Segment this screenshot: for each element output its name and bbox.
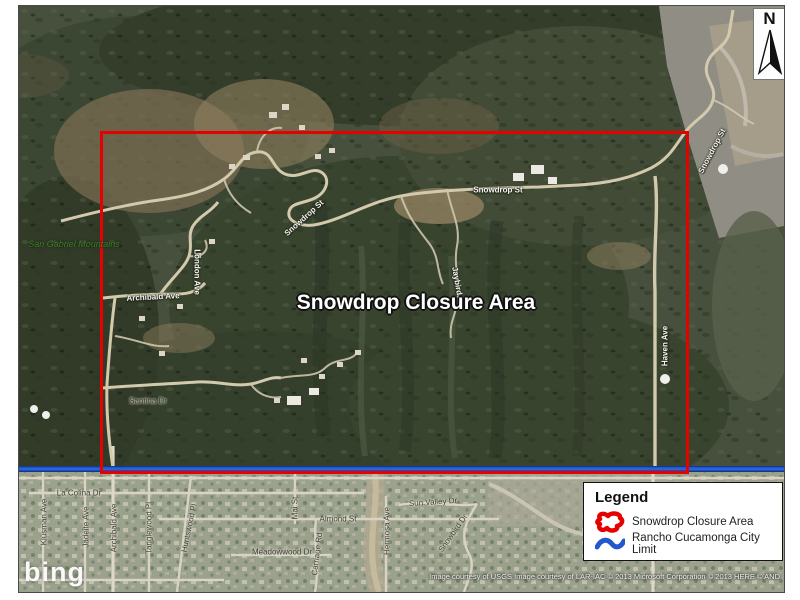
road-label-archibald-ave-lower: Archibald Ave xyxy=(110,504,119,553)
road-label-snowdrop-st: Snowdrop St xyxy=(473,186,522,195)
road-label-hermosa-ave: Hermosa Ave xyxy=(383,507,392,555)
north-arrow-icon xyxy=(757,29,783,77)
road-label-la-colina-dr: La Colina Dr xyxy=(57,489,101,498)
legend-item-label: Snowdrop Closure Area xyxy=(632,516,753,528)
north-arrow: N xyxy=(753,8,785,80)
road-label-klusman-ave: Klusman Ave xyxy=(40,499,49,546)
attribution-text: Image courtesy of USGS Image courtesy of… xyxy=(360,572,780,581)
road-label-tanglewood-pl: Tanglewood Pl xyxy=(145,502,154,554)
road-label-jadeite-ave: Jadeite Ave xyxy=(82,506,91,547)
road-label-mai-st: Mai St xyxy=(291,497,300,520)
road-label-santina-dr: Santina Dr xyxy=(129,397,167,406)
map-canvas[interactable]: Snowdrop Closure Area San Gabriel Mounta… xyxy=(18,5,785,593)
legend-title: Legend xyxy=(595,489,782,506)
road-label-haven-ave: Haven Ave xyxy=(661,326,670,366)
page: Snowdrop Closure Area San Gabriel Mounta… xyxy=(0,0,800,600)
legend-item-closure-area: Snowdrop Closure Area xyxy=(595,511,782,533)
legend-item-label: Rancho Cucamonga City Limit xyxy=(632,532,782,556)
road-label-almond-st: Almond St xyxy=(320,515,357,524)
closure-area-swatch-icon xyxy=(595,511,625,533)
closure-area-label: Snowdrop Closure Area xyxy=(297,291,535,315)
bing-logo: bing xyxy=(24,557,85,588)
north-label: N xyxy=(754,9,785,29)
legend-item-city-limit: Rancho Cucamonga City Limit xyxy=(595,533,782,555)
legend: Legend Snowdrop Closure Area Rancho Cuca… xyxy=(583,482,783,561)
road-label-london-ave: London Ave xyxy=(193,249,202,295)
road-label-meadowwood-dr: Meadowwood Dr xyxy=(252,548,312,557)
city-limit-swatch-icon xyxy=(595,535,625,553)
region-label-san-gabriel: San Gabriel Mountains xyxy=(28,239,120,249)
